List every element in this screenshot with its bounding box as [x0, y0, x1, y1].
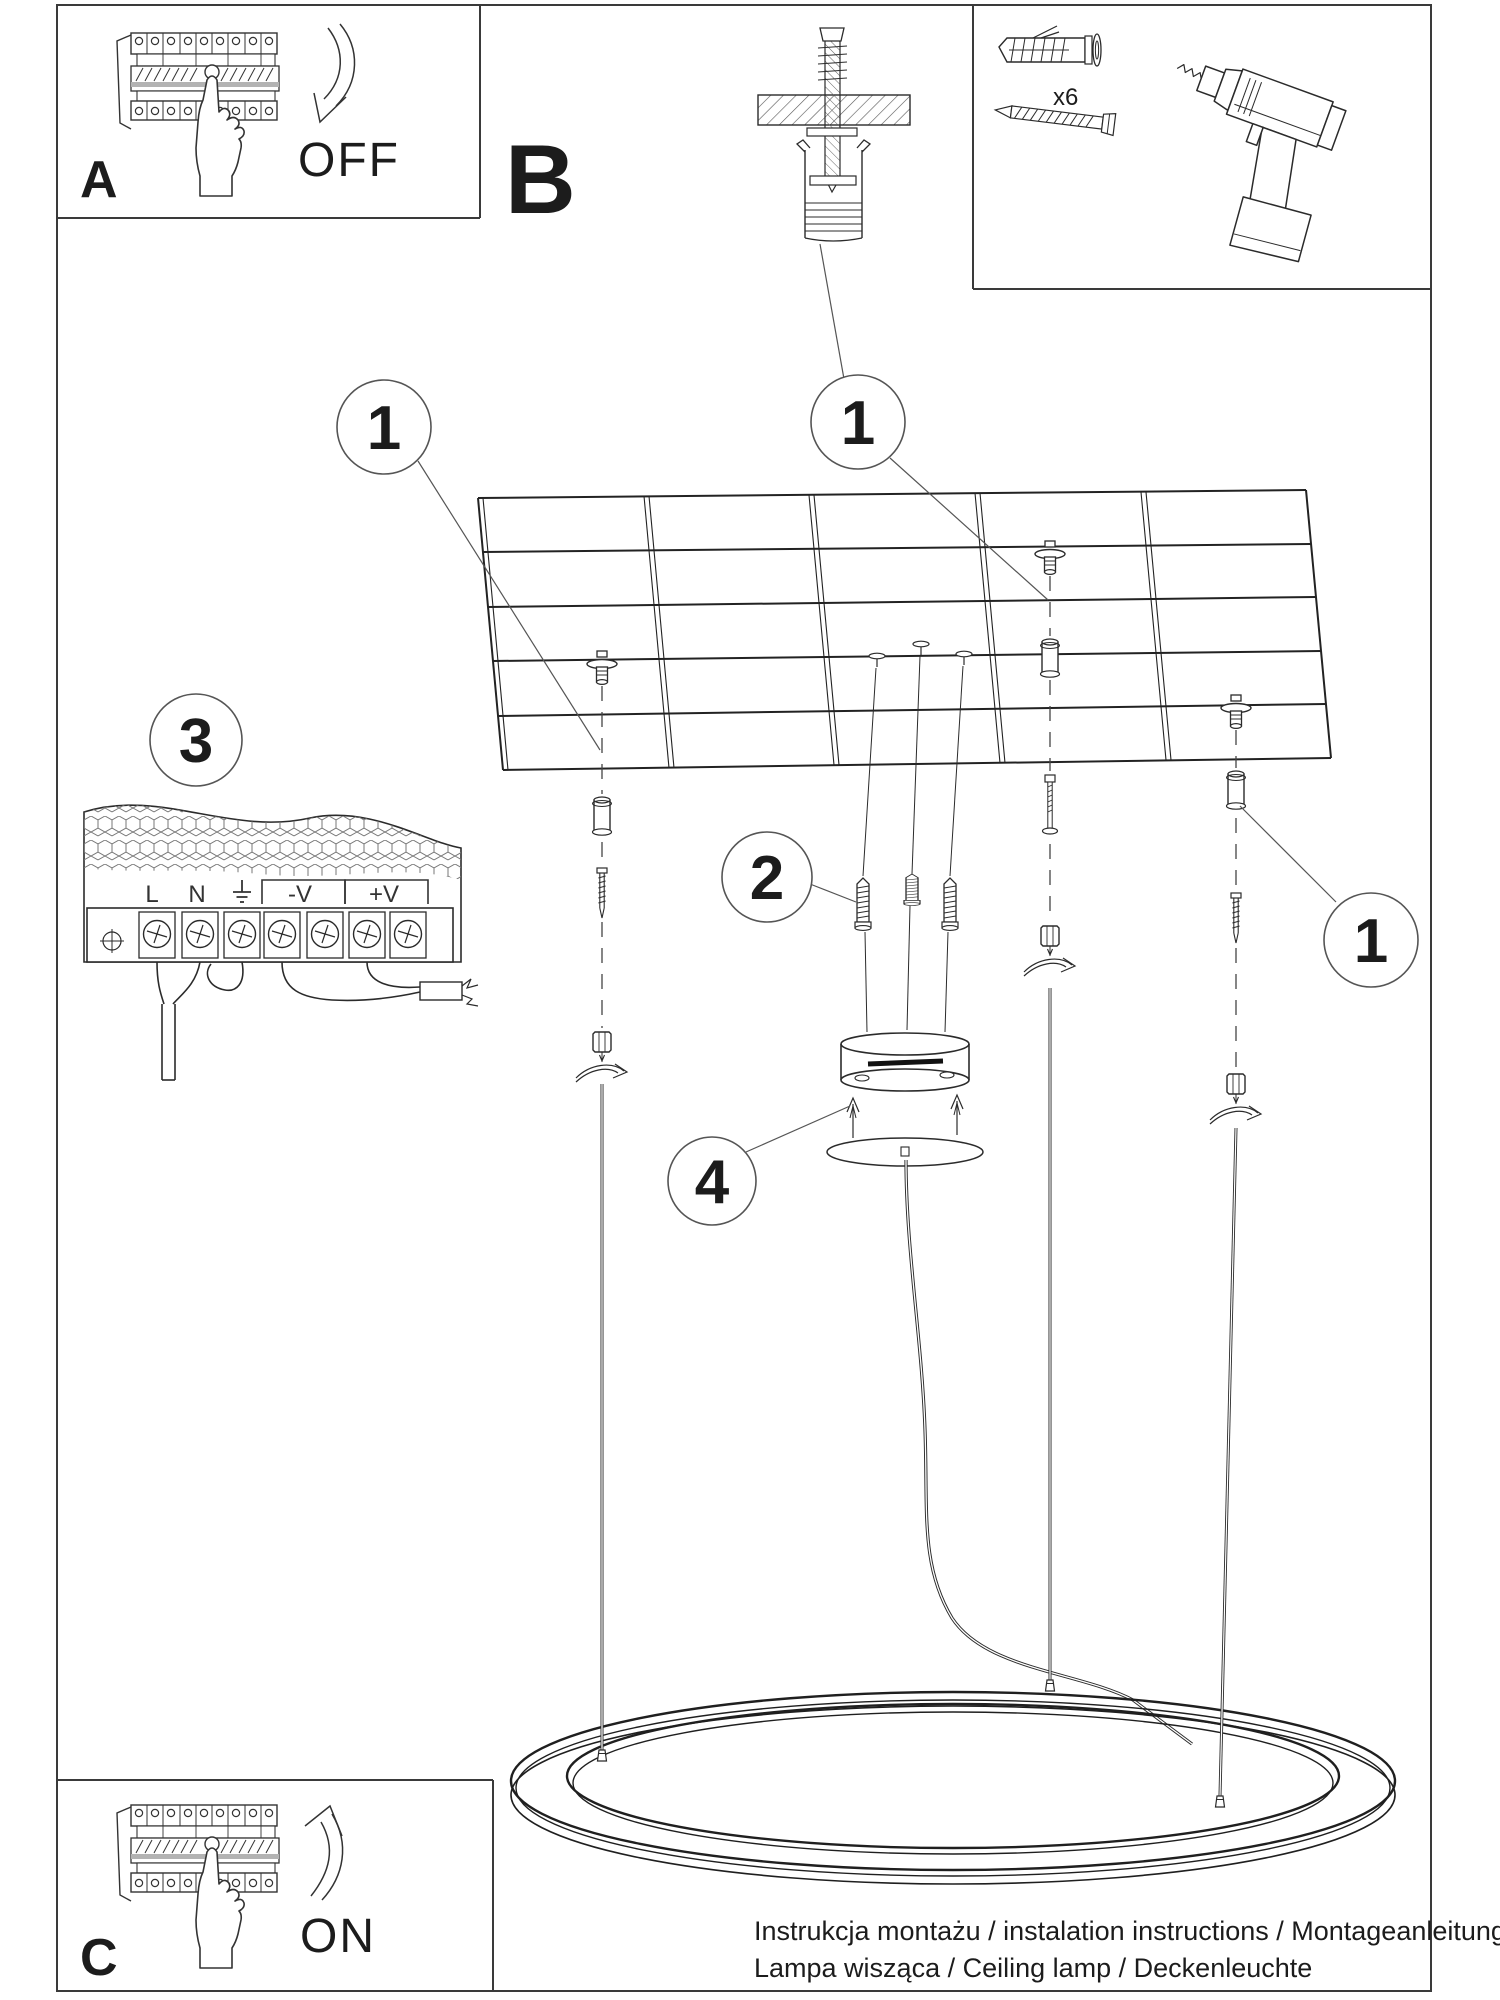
power-supply-terminals: L N -V +V — [84, 805, 478, 1080]
mounting-screw — [1043, 775, 1058, 834]
canopy — [841, 1033, 969, 1091]
psu-wires — [157, 962, 478, 1080]
callout-3: 3 — [150, 694, 242, 786]
diagram-canvas: A OFF B — [0, 0, 1500, 2000]
insert-arrow-icon — [951, 1095, 963, 1135]
suspension-column-mid-right — [1024, 541, 1075, 976]
wire-ferrule — [1046, 1680, 1055, 1691]
drill-icon — [1127, 48, 1354, 269]
wall-plug-icon — [999, 26, 1101, 66]
callout-number: 1 — [841, 389, 875, 458]
arrow-down-icon — [314, 24, 355, 122]
callout-number: 1 — [367, 394, 401, 463]
grid-screw — [587, 651, 617, 684]
anchor-quantity: x6 — [1053, 84, 1078, 111]
callout-4: 4 — [668, 1106, 850, 1225]
callout-number: 4 — [695, 1148, 730, 1217]
terminal-pos-label: +V — [369, 881, 399, 908]
step-a-action: OFF — [298, 134, 400, 187]
insert-arrow-icon — [847, 1098, 859, 1138]
ring-lamp — [511, 1692, 1395, 1884]
ceiling-anchor-detail — [758, 28, 910, 241]
step-c-label: C — [80, 1929, 118, 1987]
page-frame — [57, 5, 1431, 1991]
callout-number: 3 — [179, 707, 213, 776]
callout-1-left: 1 — [337, 380, 600, 750]
mounting-screw — [1231, 893, 1241, 943]
step-a-box: A OFF — [80, 24, 400, 209]
wall-plug — [942, 878, 958, 930]
callout-number: 1 — [1354, 907, 1388, 976]
terminal-l-label: L — [145, 881, 158, 908]
wall-plug — [904, 874, 920, 905]
expansion-sleeve — [1041, 639, 1060, 677]
callout-2: 2 — [722, 832, 856, 922]
wire-gripper — [1041, 926, 1059, 956]
expansion-sleeve — [1227, 771, 1246, 809]
terminal-neg-label: -V — [288, 881, 312, 908]
step-a-label: A — [80, 151, 118, 209]
rotation-arrow-icon — [576, 1064, 627, 1082]
suspension-wires — [598, 988, 1237, 1807]
mounting-screw — [597, 868, 607, 918]
grid-pin — [956, 651, 972, 665]
expansion-sleeve — [593, 797, 612, 835]
wire-ferrule — [598, 1750, 607, 1761]
grid-pin — [913, 641, 929, 655]
wire-gripper — [1227, 1074, 1245, 1104]
rotation-arrow-icon — [1210, 1106, 1261, 1124]
mounting-kit-box: x6 — [994, 26, 1354, 269]
canopy-column — [827, 641, 1192, 1744]
wall-plug — [855, 878, 871, 930]
suspended-ceiling-grid — [478, 490, 1331, 770]
wire-ferrule — [1216, 1796, 1225, 1807]
grid-screw — [1221, 695, 1251, 728]
arrow-up-icon — [305, 1806, 343, 1900]
footer-text: Instrukcja montażu / instalation instruc… — [754, 1916, 1500, 1983]
wire-gripper — [593, 1032, 611, 1062]
rotation-arrow-icon — [1024, 958, 1075, 976]
step-b-label: B — [505, 124, 576, 234]
footer-line1: Instrukcja montażu / instalation instruc… — [754, 1916, 1500, 1946]
callout-1-bottom-right: 1 — [1240, 806, 1418, 987]
instruction-sheet: A OFF B — [0, 0, 1500, 2000]
step-c-action: ON — [300, 1910, 376, 1963]
terminal-n-label: N — [188, 881, 205, 908]
footer-line2: Lampa wisząca / Ceiling lamp / Deckenleu… — [754, 1953, 1312, 1983]
step-c-box: C ON — [80, 1805, 376, 1987]
callout-number: 2 — [750, 844, 784, 913]
grid-pin — [869, 653, 885, 667]
